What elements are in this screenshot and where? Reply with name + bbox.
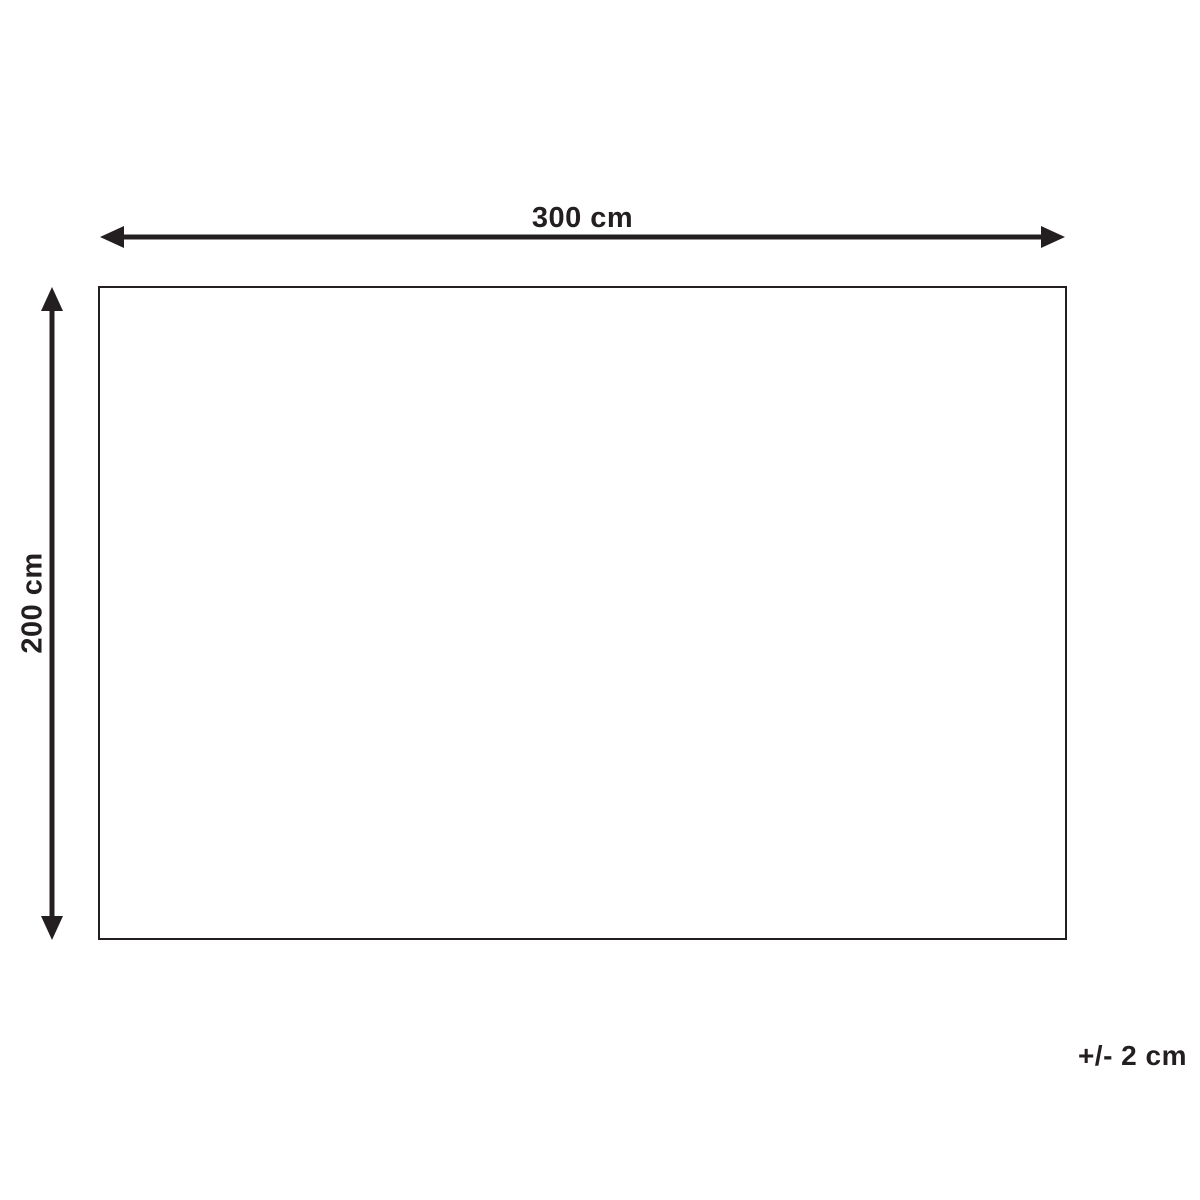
height-dimension-label: 200 cm bbox=[19, 552, 48, 653]
product-outline-rect bbox=[99, 287, 1066, 939]
height-arrow-bottom-head-icon bbox=[41, 916, 63, 940]
dimension-diagram-graphic bbox=[0, 0, 1200, 1200]
dimension-diagram: 300 cm 200 cm +/- 2 cm bbox=[0, 0, 1200, 1200]
height-arrow-top-head-icon bbox=[41, 287, 63, 311]
width-dimension-label: 300 cm bbox=[100, 204, 1065, 233]
tolerance-label: +/- 2 cm bbox=[1078, 1042, 1187, 1070]
